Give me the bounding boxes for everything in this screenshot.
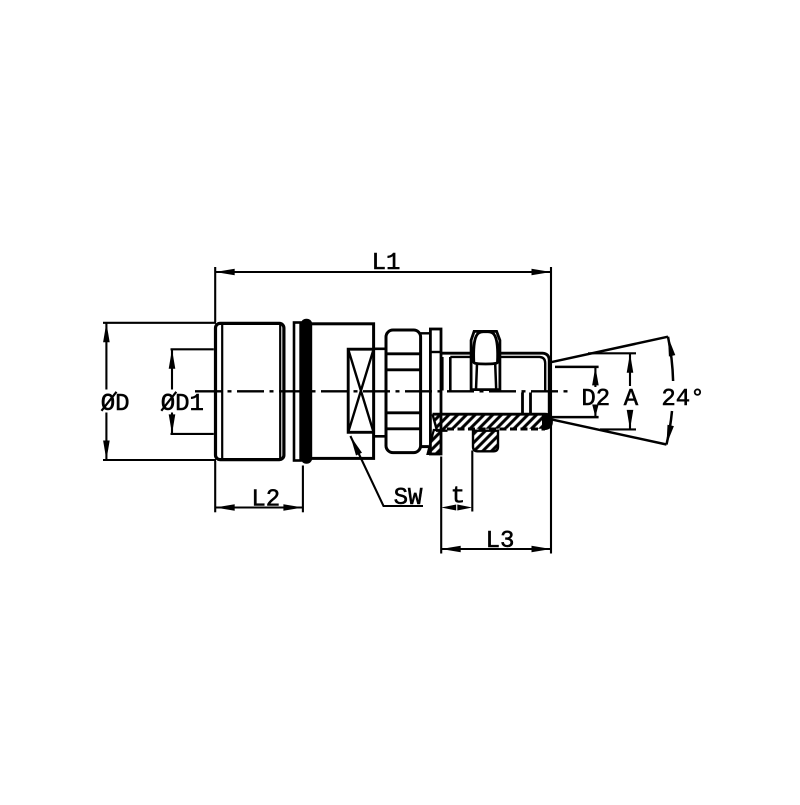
svg-text:L2: L2 (251, 487, 280, 514)
svg-text:D2: D2 (581, 386, 610, 413)
svg-text:L1: L1 (372, 250, 401, 277)
svg-text:t: t (451, 484, 465, 511)
svg-text:A: A (624, 386, 639, 413)
svg-text:L3: L3 (486, 528, 515, 555)
svg-text:SW: SW (394, 485, 423, 512)
svg-text:24°: 24° (661, 386, 704, 413)
